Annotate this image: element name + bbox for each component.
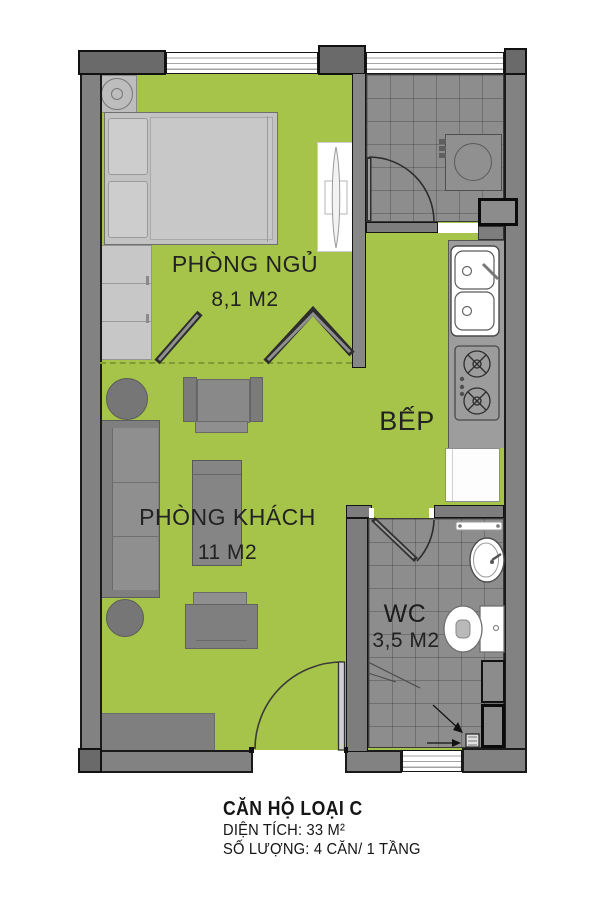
entrance-door-leaf: [339, 662, 345, 750]
floor-plan: PHÒNG NGỦ 8,1 M2 PHÒNG KHÁCH 11 M2 BẾP W…: [0, 0, 600, 900]
plan-overlay: [0, 0, 600, 900]
label-living: PHÒNG KHÁCH: [130, 504, 325, 531]
toilet-seat-mark: [456, 620, 470, 638]
label-living-area: 11 M2: [130, 541, 325, 565]
towel-rail: [456, 522, 502, 530]
caption-area: DIỆN TÍCH: 33 M²: [223, 822, 345, 840]
stove-knob: [460, 377, 464, 381]
entrance-door-jamb: [344, 747, 348, 753]
label-kitchen: BẾP: [368, 406, 446, 437]
towel-rail-end: [496, 524, 500, 528]
stove-knob: [460, 392, 464, 396]
caption-quantity: SỐ LƯỢNG: 4 CĂN/ 1 TẦNG: [223, 841, 421, 859]
drain-arrow: [433, 705, 458, 728]
drain-arrow-head: [452, 739, 461, 747]
towel-rail-end: [458, 524, 462, 528]
laundry-door-arc: [369, 157, 434, 222]
stove-knob: [460, 385, 464, 389]
drain-arrow-head: [453, 722, 463, 733]
washbasin-drain-icon: [490, 560, 494, 564]
stove: [455, 346, 499, 420]
sink-bowl: [455, 292, 494, 330]
toilet-tank: [480, 606, 504, 652]
partition-panel-core: [159, 315, 198, 360]
wc-door-leaf-core: [375, 521, 414, 558]
entrance-door-arc: [255, 662, 342, 749]
label-bedroom-area: 8,1 M2: [155, 288, 335, 312]
label-wc-area: 3,5 M2: [360, 629, 452, 653]
caption-title: CĂN HỘ LOẠI C: [223, 798, 363, 821]
label-wc: WC: [366, 600, 444, 629]
entrance-door-jamb: [249, 747, 254, 753]
label-bedroom: PHÒNG NGỦ: [155, 251, 335, 278]
tv-icon: [332, 147, 340, 248]
wc-door-arc: [417, 520, 434, 561]
